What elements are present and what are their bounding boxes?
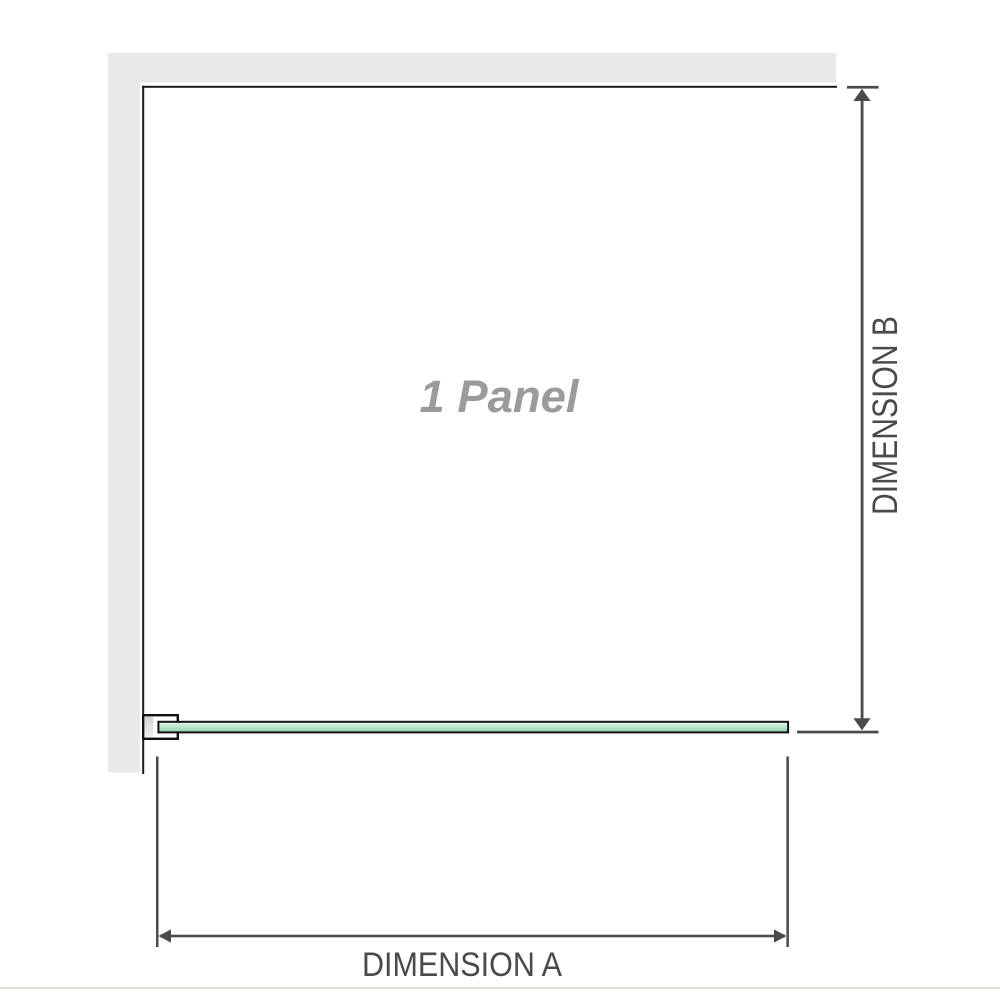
svg-text:DIMENSION A: DIMENSION A [362,946,562,984]
svg-text:1 Panel: 1 Panel [420,371,581,422]
svg-text:DIMENSION B: DIMENSION B [866,316,905,515]
